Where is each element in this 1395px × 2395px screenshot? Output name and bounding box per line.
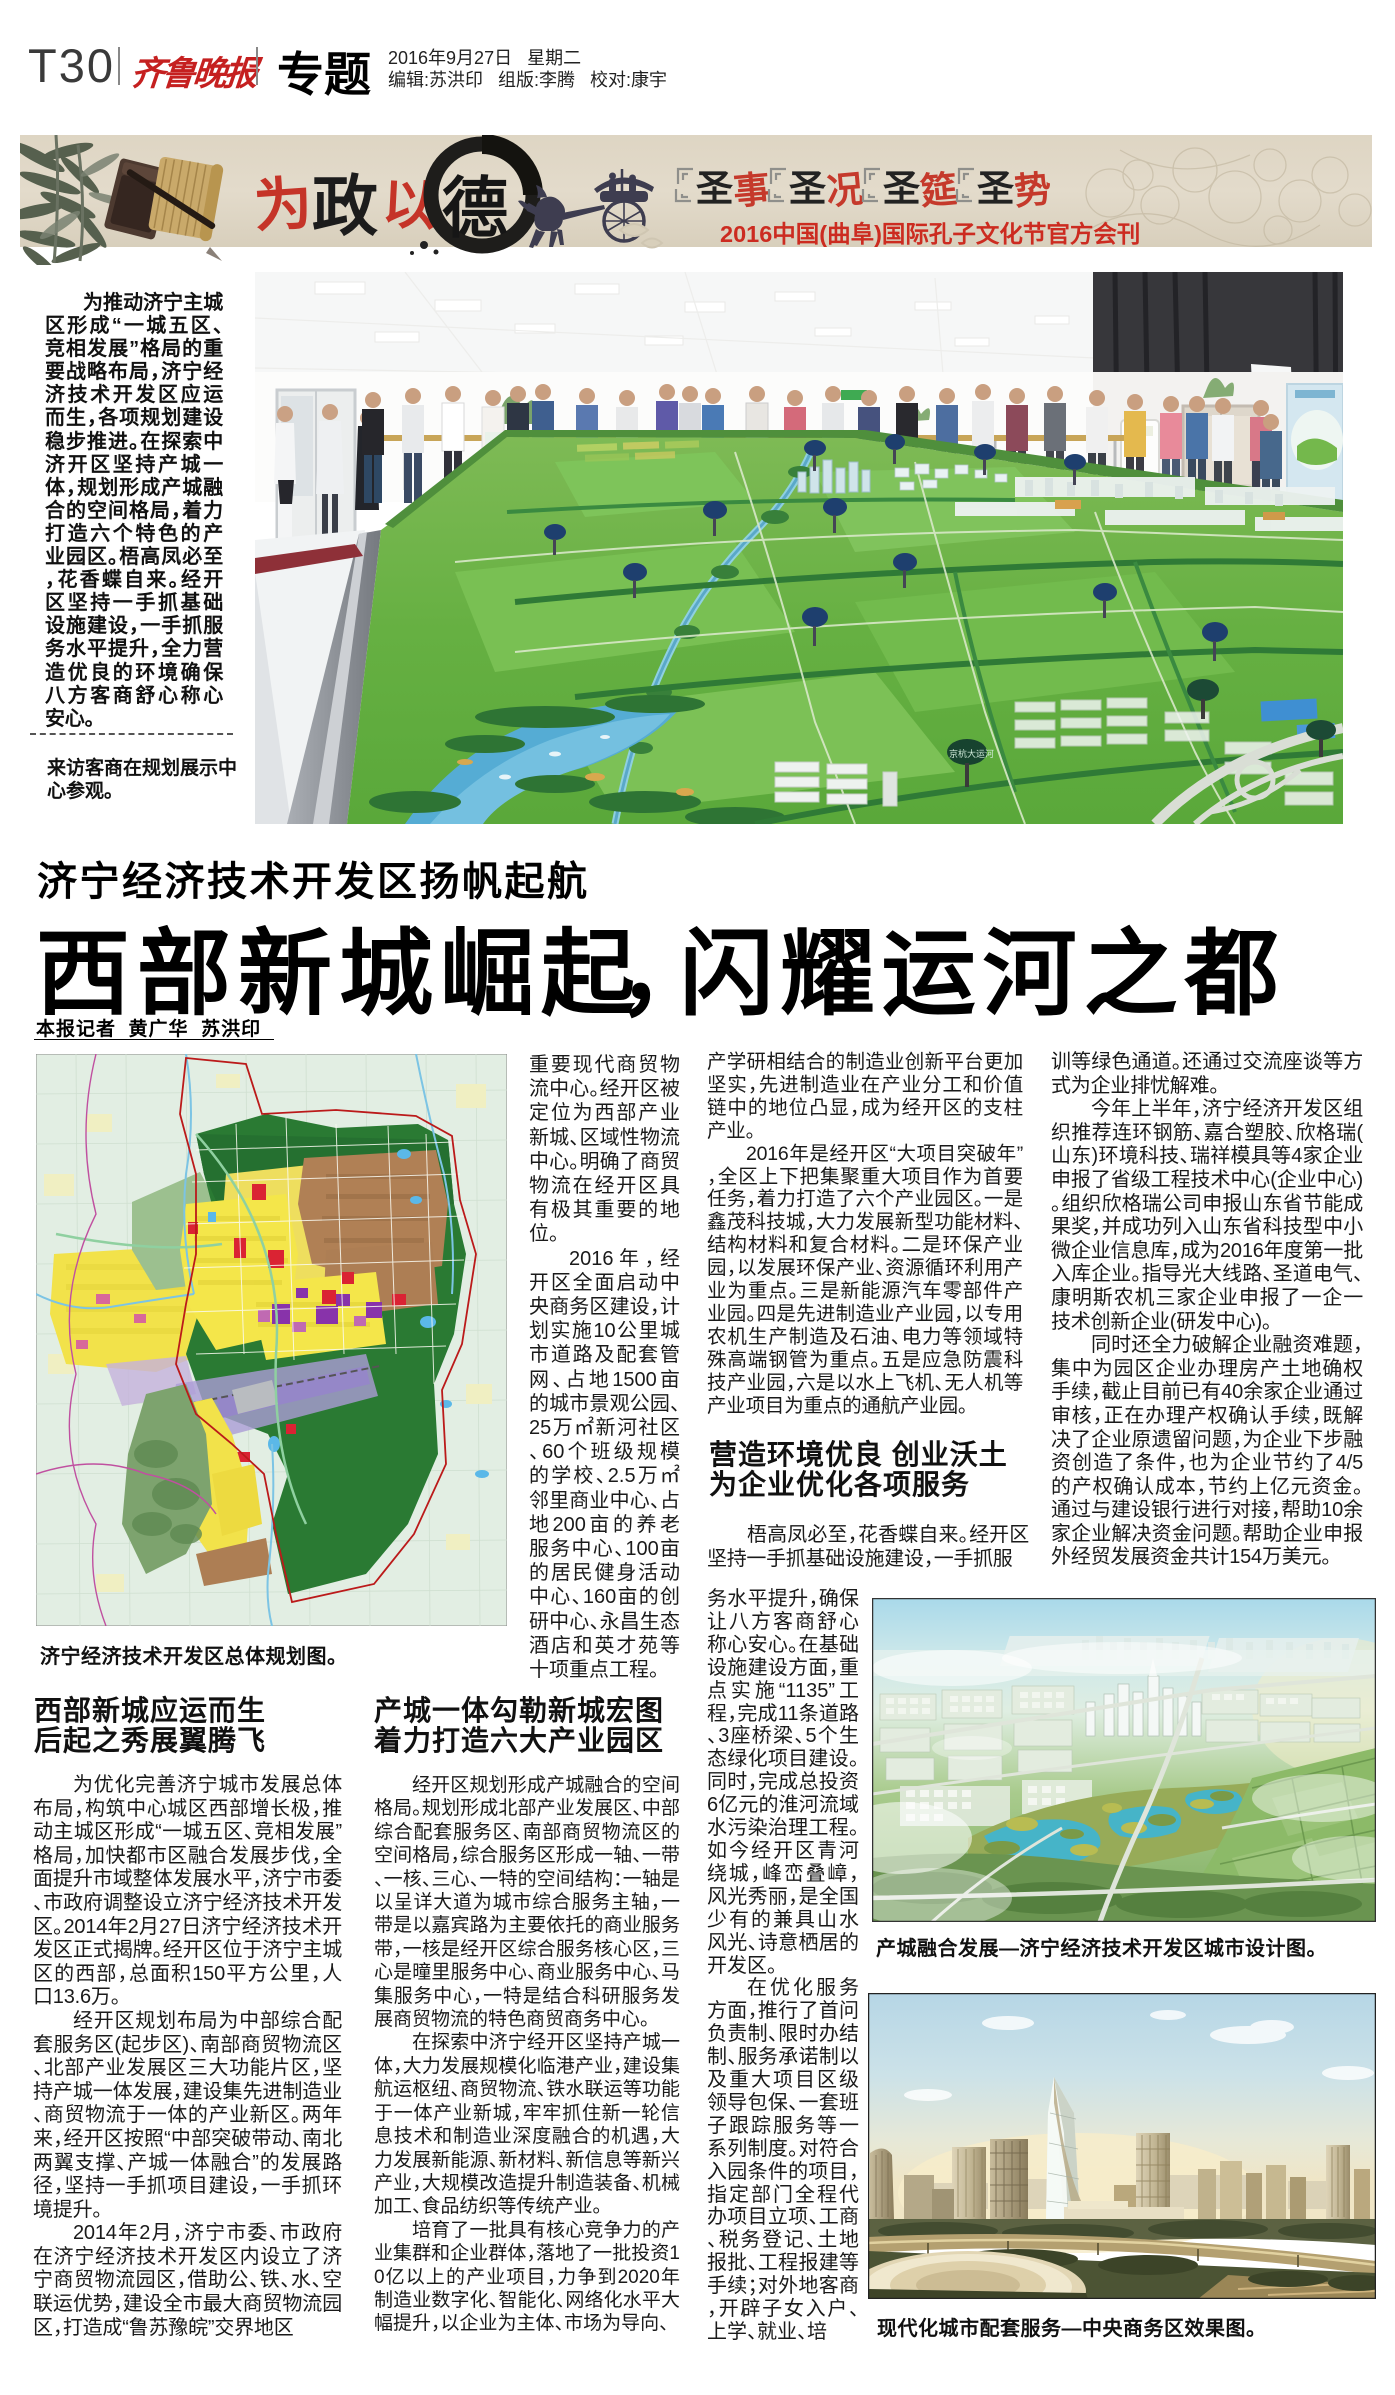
- svg-text:政: 政: [312, 171, 378, 244]
- svg-text:京杭大运河: 京杭大运河: [949, 748, 994, 759]
- svg-text:况: 况: [825, 169, 865, 213]
- svg-text:圣: 圣: [789, 169, 826, 210]
- svg-text:势: 势: [1013, 168, 1054, 213]
- svg-text:2016中国(曲阜)国际孔子文化节官方会刊: 2016中国(曲阜)国际孔子文化节官方会刊: [720, 220, 1140, 247]
- svg-text:事: 事: [732, 168, 773, 213]
- svg-text:德: 德: [442, 173, 508, 246]
- svg-text:圣: 圣: [977, 169, 1014, 210]
- svg-text:为: 为: [252, 171, 314, 240]
- svg-text:圣: 圣: [883, 169, 920, 210]
- svg-text:筵: 筵: [919, 168, 960, 213]
- svg-text:圣: 圣: [696, 169, 733, 210]
